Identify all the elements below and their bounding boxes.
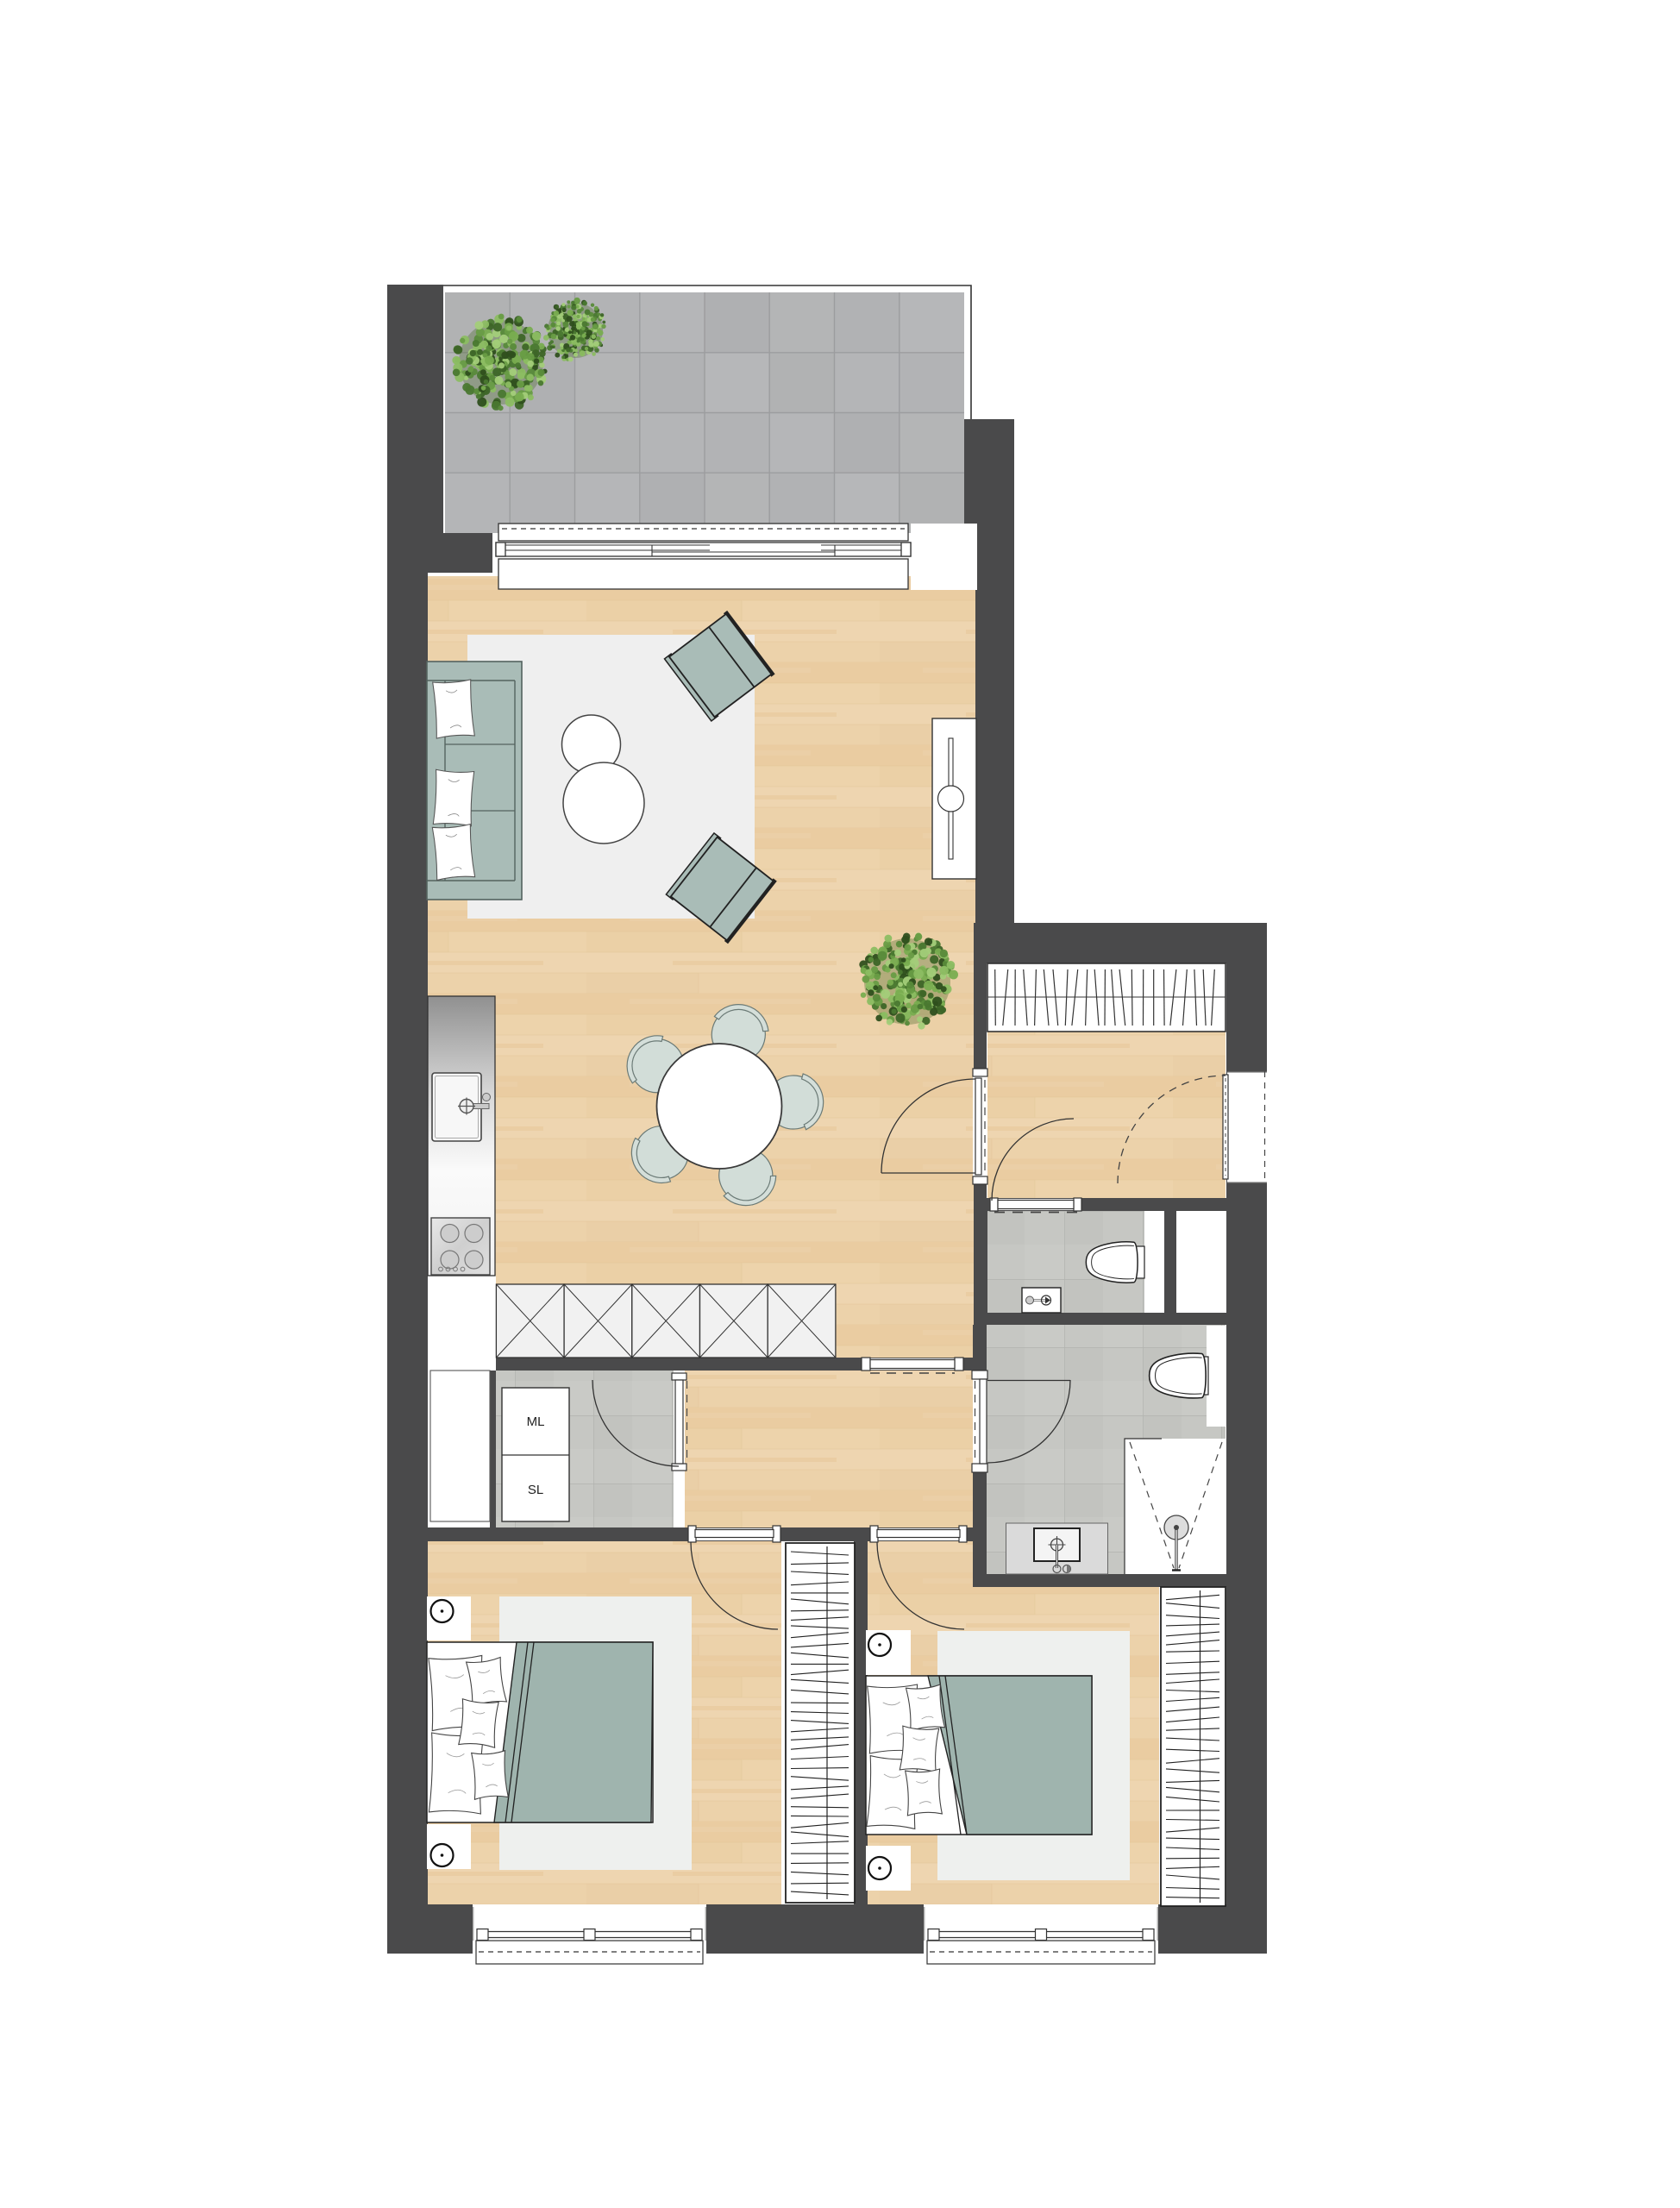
svg-text:ML: ML	[527, 1414, 545, 1429]
svg-text:SL: SL	[528, 1483, 543, 1497]
